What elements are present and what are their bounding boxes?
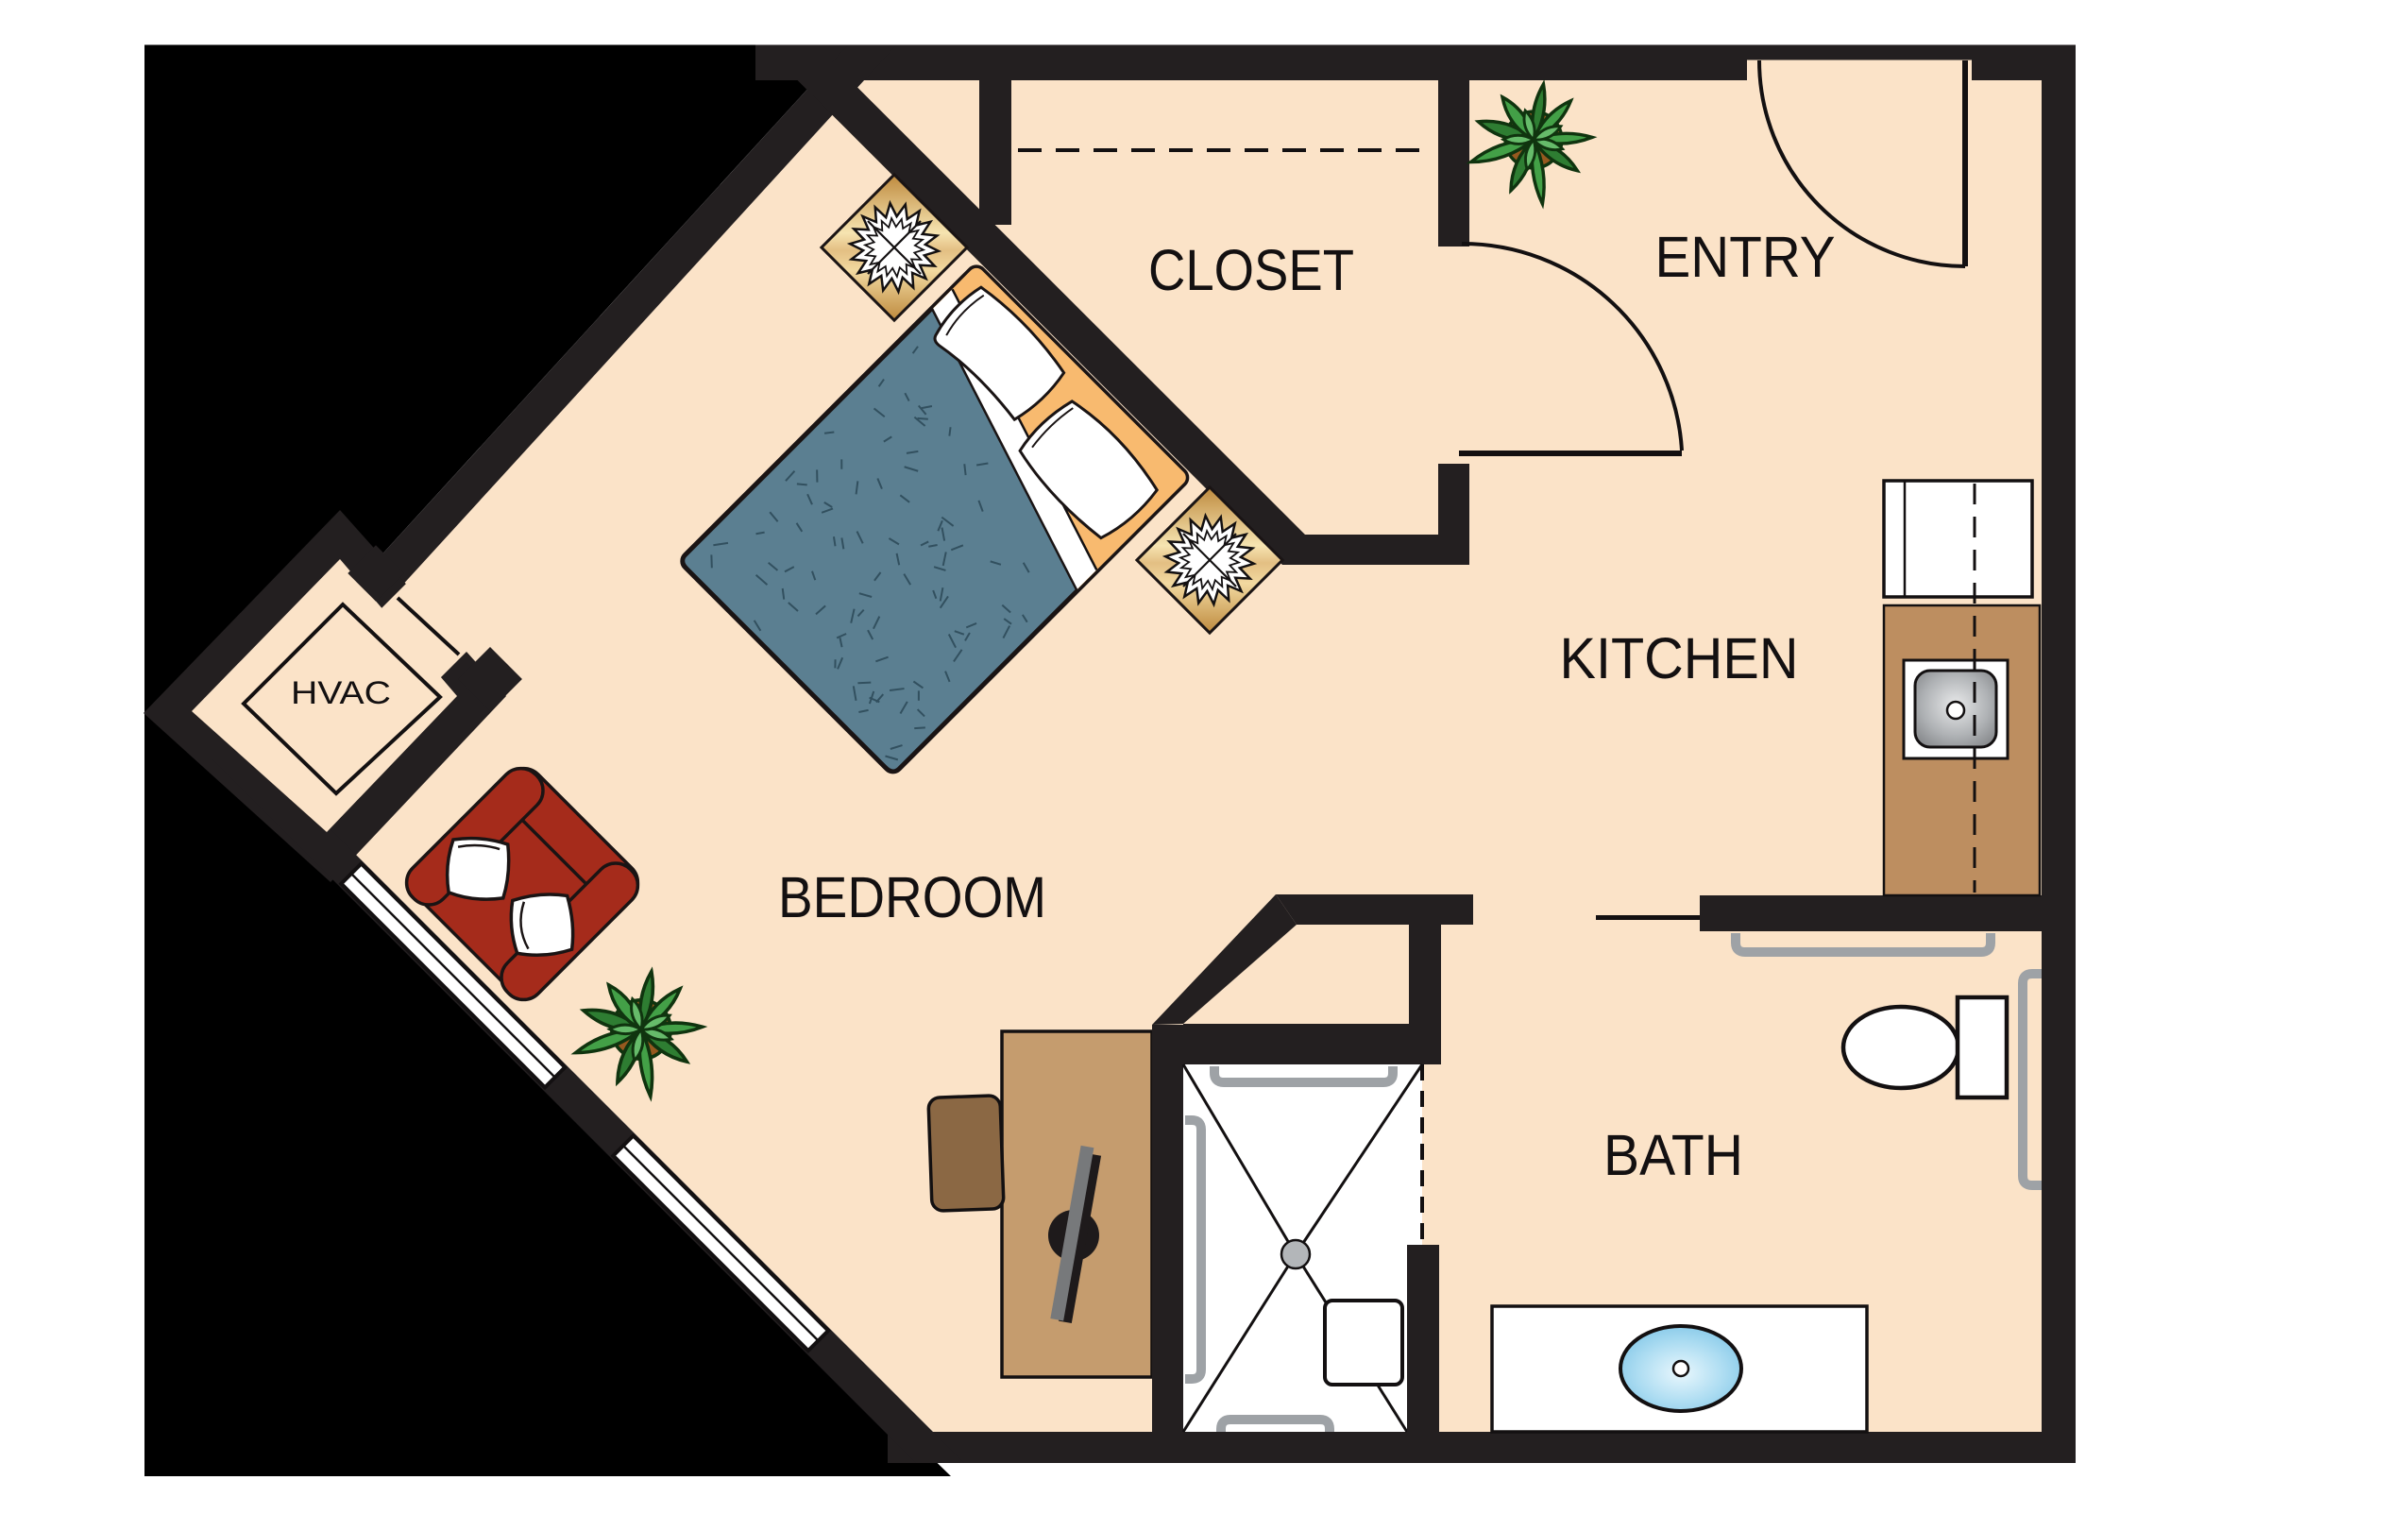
svg-text:BATH: BATH xyxy=(1603,1123,1743,1187)
svg-text:KITCHEN: KITCHEN xyxy=(1560,626,1799,690)
svg-text:HVAC: HVAC xyxy=(291,675,391,711)
svg-text:BEDROOM: BEDROOM xyxy=(778,865,1046,929)
svg-text:CLOSET: CLOSET xyxy=(1148,238,1354,302)
svg-text:ENTRY: ENTRY xyxy=(1655,225,1836,289)
